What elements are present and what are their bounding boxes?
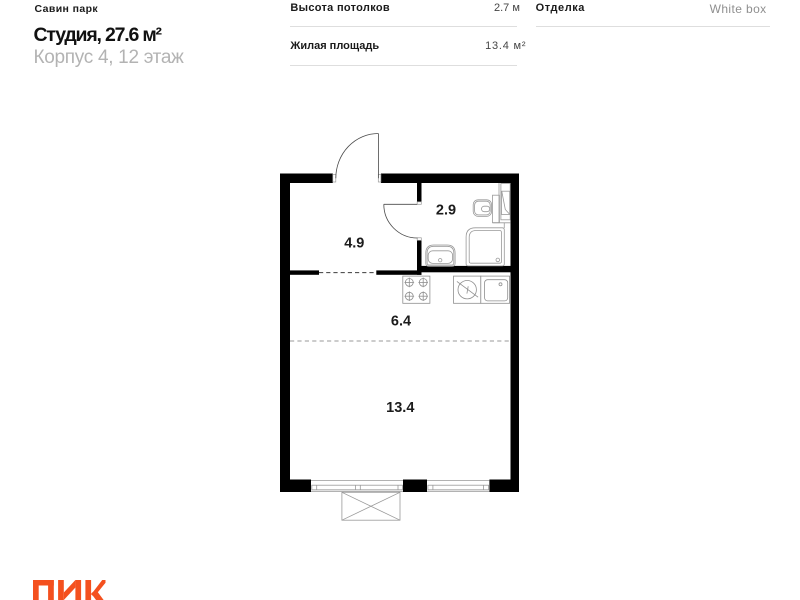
svg-text:6.4: 6.4 [391, 314, 411, 330]
svg-text:13.4: 13.4 [386, 400, 414, 416]
svg-text:4.9: 4.9 [344, 235, 364, 251]
svg-text:2.9: 2.9 [436, 202, 456, 218]
